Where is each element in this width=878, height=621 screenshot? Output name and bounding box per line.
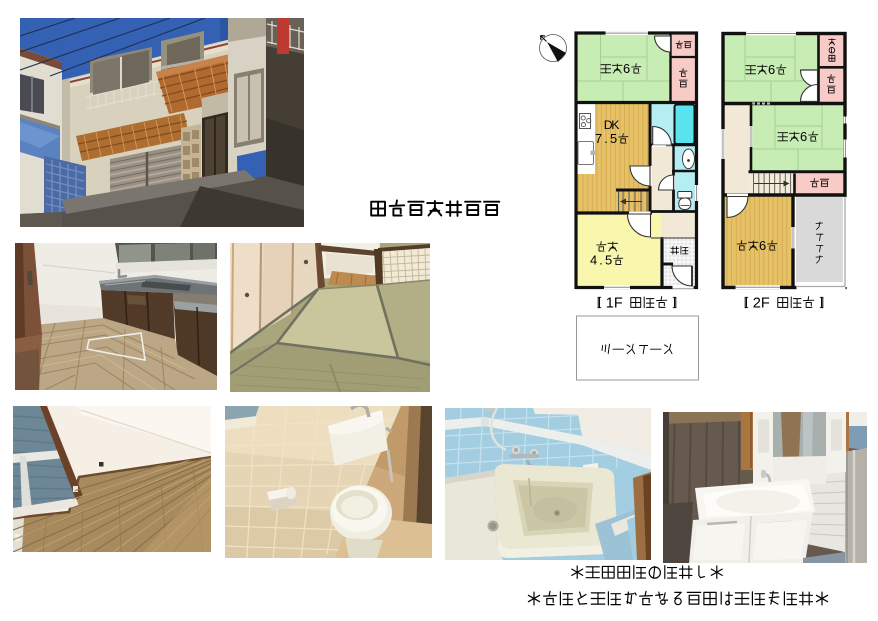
svg-text:F: F [761, 295, 770, 311]
svg-text:2: 2 [753, 295, 761, 311]
svg-text:4: 4 [590, 253, 597, 268]
svg-text:.: . [604, 131, 608, 146]
svg-text:5: 5 [605, 253, 612, 268]
svg-text:7: 7 [595, 131, 602, 146]
svg-text:6: 6 [768, 62, 775, 77]
svg-text:F: F [614, 295, 623, 311]
svg-text:1: 1 [606, 295, 614, 311]
svg-text:6: 6 [800, 129, 807, 144]
svg-text:6: 6 [623, 61, 630, 76]
svg-text:.: . [599, 253, 603, 268]
svg-text:K: K [611, 118, 620, 132]
svg-text:6: 6 [759, 238, 766, 253]
svg-text:5: 5 [610, 131, 617, 146]
